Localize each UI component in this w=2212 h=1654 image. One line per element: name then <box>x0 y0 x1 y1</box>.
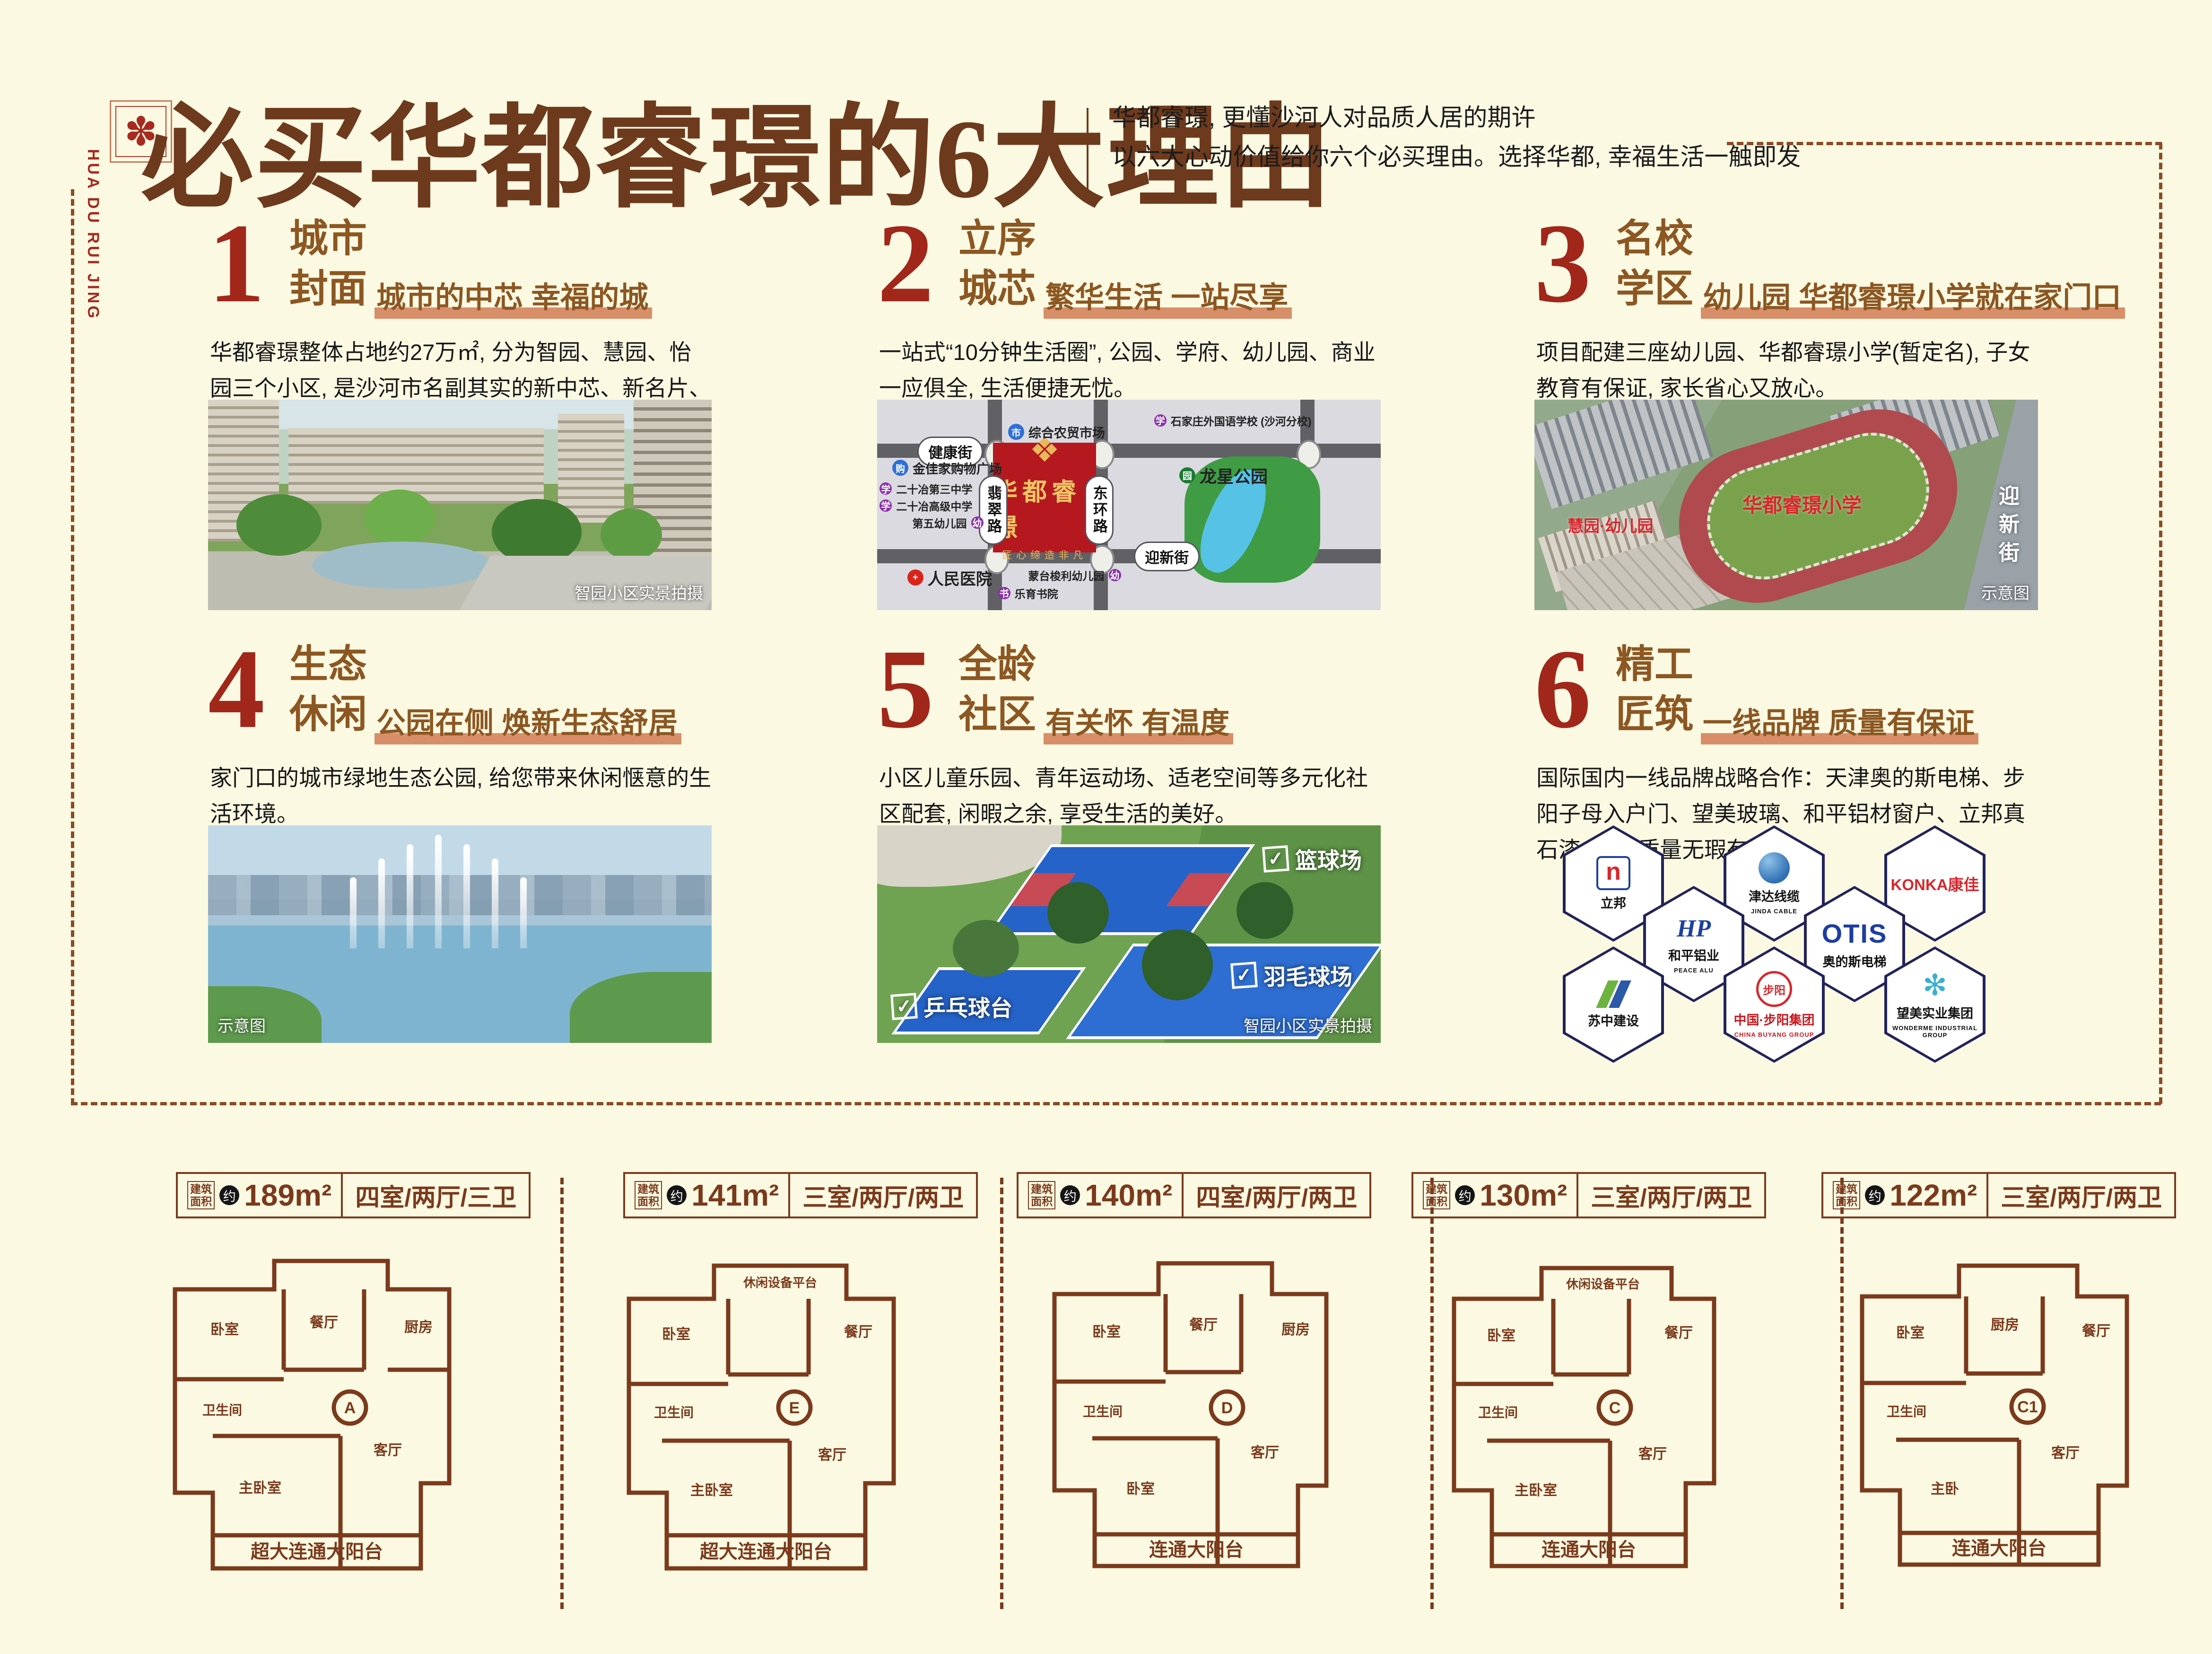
section-body: 家门口的城市绿地生态公园, 给您带来休闲惬意的生活环境。 <box>210 760 714 832</box>
floorplan-separator <box>1000 1178 1003 1609</box>
svg-text:主卧: 主卧 <box>1931 1481 1959 1497</box>
section-title: 学区 <box>1616 270 1693 308</box>
kindergarten-icon: 幼 <box>971 516 984 529</box>
approx-badge: 约 <box>1865 1185 1885 1205</box>
subtitle: 华都睿璟, 更懂沙河人对品质人居的期许 以六大心动价值给你六个必买理由。选择华都… <box>1112 98 1801 176</box>
school-icon: 学 <box>880 499 892 512</box>
svg-text:餐厅: 餐厅 <box>1664 1325 1693 1341</box>
section-tagline: 幼儿园 华都睿璟小学就在家门口 <box>1701 273 2125 319</box>
section-number: 4 <box>208 626 265 751</box>
fountain-jet <box>378 858 385 948</box>
dashed-border-left <box>71 189 74 1105</box>
floorplan-drawing-2: 卧室 休闲设备平台 餐厅 卫生间 客厅 主卧室 E 超大连通大阳台 <box>591 1228 922 1616</box>
svg-text:卫生间: 卫生间 <box>202 1403 242 1418</box>
green-bank <box>570 972 712 1043</box>
photo-park-lake: 示意图 <box>208 825 712 1043</box>
road-label: 东环路 <box>1085 475 1114 545</box>
svg-text:主卧室: 主卧室 <box>1515 1482 1557 1498</box>
fountain-jet <box>407 844 413 948</box>
photo-caption: 智园小区实景拍摄 <box>1244 1013 1372 1036</box>
approx-badge: 约 <box>1060 1185 1080 1205</box>
school-icon: 学 <box>1154 414 1167 427</box>
section-title: 城市 <box>289 219 367 258</box>
svg-text:卧室: 卧室 <box>1126 1481 1155 1497</box>
poi-kindergarten: 第五幼儿园 幼 <box>913 515 984 531</box>
floorplan-label-1: 建筑面积约189m² 四室/两厅/三卫 <box>176 1172 531 1218</box>
konka-logo: KONKA康佳 <box>1891 872 1979 895</box>
jinda-logo-icon <box>1759 852 1790 884</box>
checkbox-icon: ✓ <box>890 993 918 1020</box>
school-label: 华都睿璟小学 <box>1742 490 1862 518</box>
svg-text:A: A <box>344 1399 356 1417</box>
section-title: 休闲 <box>289 695 367 734</box>
otis-logo: OTIS <box>1822 918 1888 949</box>
tree <box>601 508 662 560</box>
svg-text:餐厅: 餐厅 <box>310 1315 338 1330</box>
svg-text:E: E <box>789 1399 800 1417</box>
project-name: 华都睿璟 <box>993 472 1096 543</box>
basketball-label: ✓ 篮球场 <box>1263 842 1362 875</box>
section-number: 6 <box>1534 626 1591 751</box>
svg-text:厨房: 厨房 <box>1281 1322 1310 1338</box>
svg-text:客厅: 客厅 <box>818 1447 846 1463</box>
floorplan-separator <box>560 1178 564 1609</box>
poi-school: 学 石家庄外国语学校 (沙河分校) <box>1154 412 1312 429</box>
svg-text:客厅: 客厅 <box>374 1442 402 1458</box>
pingpong-label: ✓ 乒乓球台 <box>891 990 1012 1023</box>
section-all-age-community: 5 全龄 社区 有关怀 有温度 小区儿童乐园、青年运动场、适老空间等多元化社区配… <box>877 648 1381 761</box>
section-tagline: 城市的中芯 幸福的城 <box>374 273 652 319</box>
poi-academy: 书 乐育书院 <box>998 585 1058 601</box>
section-title: 精工 <box>1616 645 1693 684</box>
photo-residential: 智园小区实景拍摄 <box>208 400 712 610</box>
academy-icon: 书 <box>998 587 1010 599</box>
section-number: 1 <box>208 201 265 325</box>
section-body: 项目配建三座幼儿园、华都睿璟小学(暂定名), 子女教育有保证, 家长省心又放心。 <box>1536 334 2040 406</box>
svg-text:客厅: 客厅 <box>2051 1445 2080 1461</box>
svg-text:主卧室: 主卧室 <box>239 1480 281 1496</box>
svg-text:餐厅: 餐厅 <box>844 1324 872 1340</box>
brand-logo-text: HUA DU RUI JING <box>82 149 104 244</box>
svg-text:餐厅: 餐厅 <box>1189 1317 1218 1333</box>
svg-text:连通大阳台: 连通大阳台 <box>1149 1540 1244 1560</box>
peace-alu-logo-icon: HP <box>1677 915 1711 943</box>
section-body: 小区儿童乐园、青年运动场、适老空间等多元化社区配套, 闲暇之余, 享受生活的美好… <box>879 760 1383 832</box>
floorplan-label-4: 建筑面积约130m² 三室/两厅/两卫 <box>1411 1172 1766 1218</box>
svg-text:卧室: 卧室 <box>1896 1325 1925 1341</box>
fountain-jet <box>435 835 442 948</box>
svg-text:超大连通大阳台: 超大连通大阳台 <box>251 1541 383 1562</box>
park-icon: 园 <box>1179 467 1195 483</box>
poi-kindergarten: 蒙台梭利幼儿园 幼 <box>1028 567 1121 583</box>
market-icon: 市 <box>1008 424 1024 440</box>
tree <box>953 920 1019 977</box>
section-title: 生态 <box>289 645 367 684</box>
svg-text:连通大阳台: 连通大阳台 <box>1541 1540 1636 1560</box>
badminton-label: ✓ 羽毛球场 <box>1231 959 1352 991</box>
building <box>558 414 624 523</box>
section-title: 立序 <box>958 219 1036 258</box>
svg-text:卧室: 卧室 <box>662 1326 690 1342</box>
project-site: ❖ 华都睿璟 匠心缔造非凡 <box>993 443 1096 552</box>
project-slogan: 匠心缔造非凡 <box>1002 548 1087 562</box>
svg-text:餐厅: 餐厅 <box>2082 1323 2110 1339</box>
section-body: 一站式“10分钟生活圈”, 公园、学府、幼儿园、商业一应俱全, 生活便捷无忧。 <box>879 334 1383 406</box>
school-icon: 学 <box>880 482 892 495</box>
section-tagline: 一线品牌 质量有保证 <box>1701 699 1978 744</box>
svg-text:厨房: 厨房 <box>1991 1317 2019 1333</box>
section-quality-craft: 6 精工 匠筑 一线品牌 质量有保证 国际国内一线品牌战略合作：天津奥的斯电梯、… <box>1534 648 2038 761</box>
svg-text:休闲设备平台: 休闲设备平台 <box>743 1276 817 1290</box>
nippon-logo-icon: n <box>1596 856 1630 890</box>
poster: ✽ HUA DU RUI JING 必买华都睿璟的6大理由 华都睿璟, 更懂沙河… <box>0 0 2212 1654</box>
location-map: ❖ 华都睿璟 匠心缔造非凡 健康街 迎新街 翡翠路 东环路 市 综合农贸市场 学… <box>877 400 1381 610</box>
fountain-jet <box>463 844 470 948</box>
poi-market: 市 综合农贸市场 <box>1008 423 1105 441</box>
suzhong-logo-icon <box>1602 980 1625 1008</box>
approx-badge: 约 <box>1455 1185 1475 1205</box>
road-label: 迎新街 <box>1134 542 1200 571</box>
svg-text:C: C <box>1609 1399 1621 1417</box>
svg-text:C1: C1 <box>2017 1398 2038 1416</box>
floorplan-label-2: 建筑面积约141m² 三室/两厅/两卫 <box>623 1172 978 1218</box>
floorplan-label-3: 建筑面积约140m² 四室/两厅/两卫 <box>1017 1172 1371 1218</box>
floorplan-label-5: 建筑面积约122m² 三室/两厅/两卫 <box>1821 1172 2176 1218</box>
fountain-jet <box>350 877 357 948</box>
svg-text:卫生间: 卫生间 <box>1083 1404 1123 1419</box>
floorplan-drawing-4: 卧室 休闲设备平台 餐厅 卫生间 客厅 主卧室 C 连通大阳台 <box>1414 1228 1745 1616</box>
title-divider <box>1087 108 1089 197</box>
poi-school: 学 二十冶高级中学 <box>880 498 972 514</box>
section-eco-leisure: 4 生态 休闲 公园在侧 焕新生态舒居 家门口的城市绿地生态公园, 给您带来休闲… <box>208 648 712 761</box>
shopping-icon: 购 <box>892 460 908 476</box>
fountain-jet <box>520 877 527 948</box>
section-title: 全龄 <box>958 645 1036 684</box>
svg-text:厨房: 厨房 <box>404 1320 433 1335</box>
road-label: 翡翠路 <box>979 475 1008 545</box>
svg-text:客厅: 客厅 <box>1638 1446 1667 1462</box>
kindergarten-icon: 幼 <box>1109 569 1121 581</box>
svg-text:卧室: 卧室 <box>1092 1324 1121 1340</box>
brand-honeycomb: n 立邦 津达线缆 JINDA CABLE KONKA康佳 HP 和平铝业 PE… <box>1534 825 2038 1071</box>
hospital-icon: + <box>907 569 923 586</box>
svg-text:卧室: 卧室 <box>210 1321 239 1338</box>
floorplan-drawing-3: 卧室 餐厅 厨房 卫生间 客厅 卧室 D 连通大阳台 <box>1021 1228 1352 1616</box>
floorplan-drawing-5: 卧室 厨房 餐厅 卫生间 客厅 主卧 C1 连通大阳台 <box>1824 1228 2155 1616</box>
svg-text:客厅: 客厅 <box>1251 1444 1279 1461</box>
svg-text:卧室: 卧室 <box>1487 1328 1515 1344</box>
section-tagline: 有关怀 有温度 <box>1044 699 1233 744</box>
svg-text:卫生间: 卫生间 <box>1887 1404 1926 1419</box>
buyang-logo-icon: 步阳 <box>1756 971 1792 1007</box>
poi-school: 学 二十冶第三中学 <box>880 481 972 497</box>
tree <box>1142 929 1213 1000</box>
road-label: 迎新街 <box>1992 485 2022 570</box>
section-tagline: 繁华生活 一站尽享 <box>1044 273 1292 319</box>
svg-text:D: D <box>1221 1399 1233 1417</box>
section-title: 封面 <box>289 270 367 308</box>
svg-text:卫生间: 卫生间 <box>654 1405 694 1420</box>
poi-hospital: + 人民医院 <box>907 566 992 589</box>
wonderme-logo-icon: ✻ <box>1923 971 1947 1000</box>
section-number: 3 <box>1534 201 1591 325</box>
city-skyline <box>208 875 712 915</box>
pond <box>312 542 492 589</box>
tree <box>236 494 322 556</box>
dashed-border-right <box>2159 143 2162 1104</box>
section-title: 城芯 <box>958 270 1036 308</box>
floorplan-drawing-1: 卧室 餐厅 厨房 卫生间 客厅 主卧室 A 超大连通大阳台 <box>142 1228 473 1616</box>
section-title: 名校 <box>1616 219 1693 258</box>
section-tagline: 公园在侧 焕新生态舒居 <box>374 699 681 744</box>
approx-badge: 约 <box>219 1185 239 1205</box>
section-city-core: 2 立序 城芯 繁华生活 一站尽享 一站式“10分钟生活圈”, 公园、学府、幼儿… <box>877 222 1381 336</box>
poi-park: 园 龙星公园 <box>1179 463 1268 488</box>
tree <box>492 499 582 565</box>
tree <box>1237 882 1293 939</box>
svg-text:休闲设备平台: 休闲设备平台 <box>1566 1277 1640 1291</box>
section-title: 匠筑 <box>1616 695 1693 734</box>
checkbox-icon: ✓ <box>1262 845 1289 873</box>
kindergarten-label: 慧园·幼儿园 <box>1568 513 1653 536</box>
photo-sports-courts: ✓ 篮球场 ✓ 羽毛球场 ✓ 乒乓球台 智园小区实景拍摄 <box>877 825 1381 1043</box>
photo-caption: 智园小区实景拍摄 <box>575 580 703 604</box>
section-title: 社区 <box>958 695 1036 734</box>
fountain-jet <box>492 858 498 948</box>
poi-mall: 购 金佳家购物广场 <box>892 459 1002 477</box>
svg-text:连通大阳台: 连通大阳台 <box>1952 1538 2047 1559</box>
approx-badge: 约 <box>667 1185 687 1205</box>
photo-caption: 示意图 <box>1981 580 2029 604</box>
subtitle-line1: 华都睿璟, 更懂沙河人对品质人居的期许 <box>1112 98 1801 138</box>
dashed-border-top <box>1727 142 2162 145</box>
svg-text:主卧室: 主卧室 <box>690 1482 733 1498</box>
svg-text:卫生间: 卫生间 <box>1478 1405 1518 1420</box>
svg-text:超大连通大阳台: 超大连通大阳台 <box>700 1541 832 1562</box>
tree <box>1047 882 1109 944</box>
section-number: 2 <box>877 201 934 325</box>
photo-caption: 示意图 <box>218 1013 266 1036</box>
section-city-cover: 1 城市 封面 城市的中芯 幸福的城 华都睿璟整体占地约27万㎡, 分为智园、慧… <box>208 222 712 336</box>
tree <box>364 490 435 546</box>
photo-school-aerial: 华都睿璟小学 慧园·幼儿园 迎新街 示意图 <box>1534 400 2038 610</box>
section-school-district: 3 名校 学区 幼儿园 华都睿璟小学就在家门口 项目配建三座幼儿园、华都睿璟小学… <box>1534 222 2038 336</box>
checkbox-icon: ✓ <box>1230 962 1258 989</box>
dashed-border-bottom <box>71 1102 2161 1105</box>
subtitle-line2: 以六大心动价值给你六个必买理由。选择华都, 幸福生活一触即发 <box>1112 138 1801 177</box>
section-number: 5 <box>877 626 934 751</box>
